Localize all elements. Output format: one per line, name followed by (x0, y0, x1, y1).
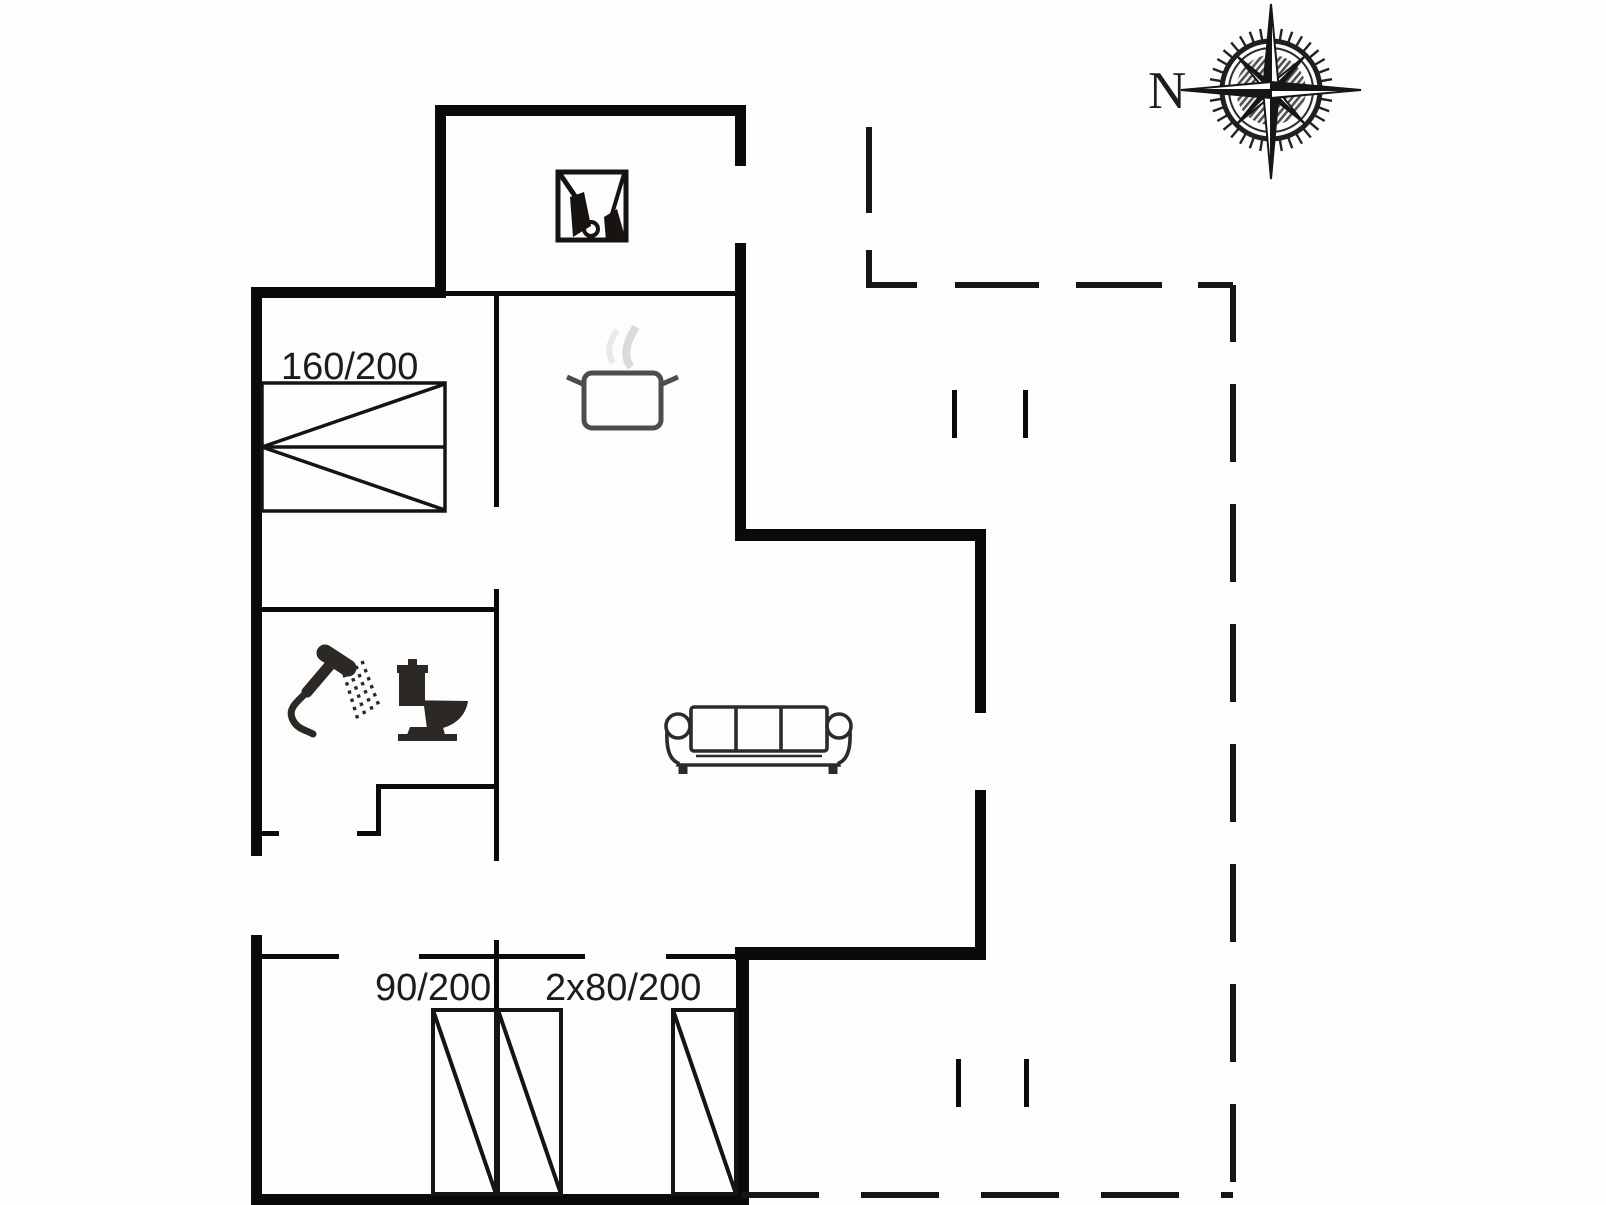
svg-text:160/200: 160/200 (281, 346, 418, 388)
svg-text:2x80/200: 2x80/200 (545, 967, 701, 1009)
svg-text:90/200: 90/200 (375, 967, 491, 1009)
svg-text:N: N (1148, 62, 1186, 120)
